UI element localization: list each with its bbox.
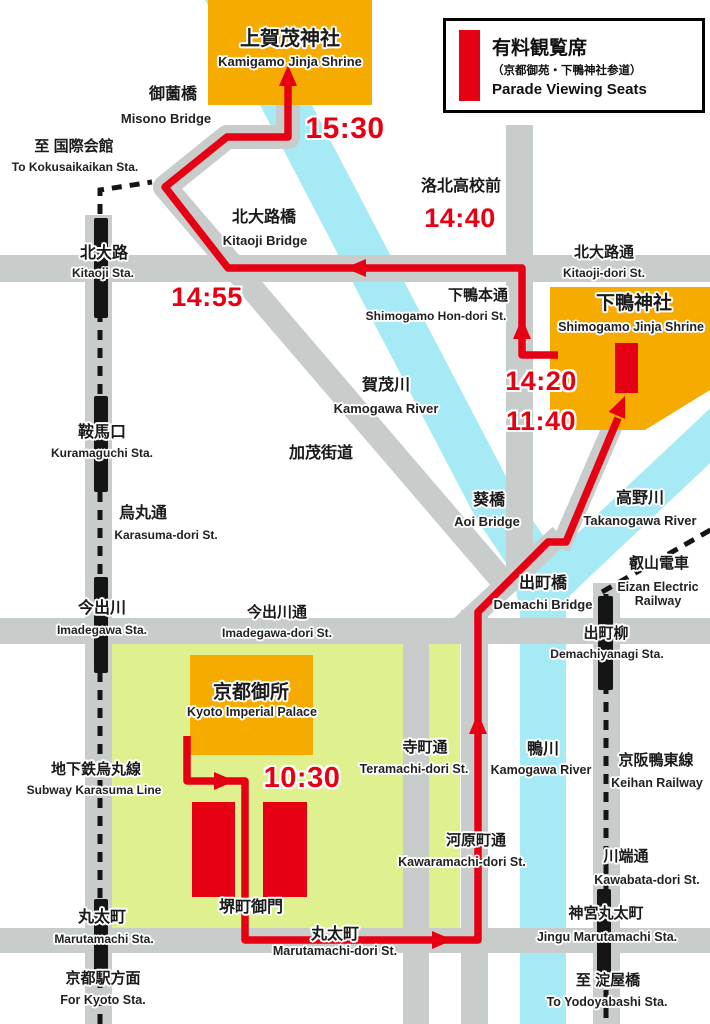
- marutamachi-station-jp: 丸太町: [78, 909, 126, 927]
- legend-title-en: Parade Viewing Seats: [492, 81, 647, 98]
- kamogawa-lower-en: Kamogawa River: [491, 764, 592, 778]
- time-arrive-kamigamo: 15:30: [305, 112, 384, 146]
- kuramaguchi-station-en: Kuramaguchi Sta.: [51, 447, 153, 460]
- viewing-seats-gyoen-east: [263, 802, 307, 897]
- teramachi-dori-road: [403, 618, 429, 1024]
- legend-box: 有料観覧席 （京都御苑・下鴨神社参道） Parade Viewing Seats: [443, 18, 705, 113]
- misono-bridge-en: Misono Bridge: [121, 112, 211, 126]
- to-kokusaikaikan-jp: 至 国際会館: [34, 139, 113, 156]
- subway-karasuma-en: Subway Karasuma Line: [27, 784, 162, 797]
- teramachi-dori-jp: 寺町通: [402, 740, 447, 757]
- imadegawa-dori-jp: 今出川通: [247, 605, 307, 622]
- shimogamo-shrine-name-jp: 下鴨神社: [596, 294, 672, 315]
- demachi-bridge-en: Demachi Bridge: [494, 598, 593, 612]
- time-kitaoji: 14:55: [171, 282, 243, 313]
- shimogamo-shrine-name-en: Shimogamo Jinja Shrine: [558, 321, 704, 335]
- imperial-palace-name-jp: 京都御所: [213, 683, 289, 704]
- demachiyanagi-station-marker: [598, 596, 613, 690]
- imperial-palace-name-en: Kyoto Imperial Palace: [187, 706, 317, 720]
- time-rakuhoku: 14:40: [424, 203, 496, 234]
- to-yodoyabashi-jp: 至 淀屋橋: [576, 973, 640, 990]
- karasuma-dori-jp: 烏丸通: [119, 505, 167, 523]
- demachi-bridge-jp: 出町橋: [519, 575, 567, 593]
- for-kyoto-station-jp: 京都駅方面: [65, 971, 140, 988]
- takanogawa-jp: 高野川: [616, 490, 664, 508]
- kyoto-parade-route-map: 有料観覧席 （京都御苑・下鴨神社参道） Parade Viewing Seats…: [0, 0, 710, 1024]
- kamigamo-shrine-name-jp: 上賀茂神社: [240, 28, 340, 50]
- rakuhoku-label: 洛北高校前: [421, 178, 501, 196]
- sakaimachi-gomon-label: 堺町御門: [219, 899, 283, 917]
- eizan-railway-en: Eizan Electric Railway: [602, 580, 710, 609]
- legend-red-swatch-icon: [459, 30, 480, 101]
- kitaoji-station-jp: 北大路: [80, 245, 128, 263]
- imadegawa-dori-en: Imadegawa-dori St.: [222, 627, 332, 640]
- kamogawa-lower-jp: 鴨川: [527, 741, 559, 759]
- shimogamo-hondori-jp: 下鴨本通: [448, 288, 508, 305]
- keihan-railway-jp: 京阪鴨東線: [618, 753, 693, 770]
- imadegawa-station-jp: 今出川: [78, 600, 126, 618]
- imadegawa-station-en: Imadegawa Sta.: [57, 624, 147, 637]
- demachiyanagi-station-en: Demachiyanagi Sta.: [550, 648, 663, 661]
- eizan-railway-jp: 叡山電車: [629, 556, 689, 573]
- kawabata-dori-en: Kawabata-dori St.: [594, 874, 700, 888]
- kawaramachi-dori-en: Kawaramachi-dori St.: [398, 856, 526, 870]
- karasuma-dori-en: Karasuma-dori St.: [114, 529, 217, 542]
- takanogawa-en: Takanogawa River: [583, 514, 696, 528]
- jingu-marutamachi-station-jp: 神宮丸太町: [568, 906, 643, 923]
- marutamachi-station-en: Marutamachi Sta.: [54, 933, 153, 946]
- kitaoji-dori-en: Kitaoji-dori St.: [563, 267, 645, 280]
- viewing-seats-shimogamo: [615, 343, 638, 393]
- kawaramachi-dori-jp: 河原町通: [446, 833, 506, 850]
- to-yodoyabashi-en: To Yodoyabashi Sta.: [547, 996, 668, 1010]
- keihan-railway-en: Keihan Railway: [611, 777, 703, 791]
- teramachi-dori-en: Teramachi-dori St.: [360, 763, 469, 777]
- subway-karasuma-jp: 地下鉄烏丸線: [51, 762, 141, 779]
- jingu-marutamachi-station-en: Jingu Marutamachi Sta.: [537, 931, 677, 945]
- to-kokusaikaikan-en: To Kokusaikaikan Sta.: [12, 161, 139, 174]
- marutamachi-dori-jp: 丸太町: [311, 926, 359, 944]
- kitaoji-bridge-jp: 北大路橋: [232, 209, 296, 227]
- kitaoji-dori-jp: 北大路通: [574, 245, 634, 262]
- kawabata-dori-jp: 川端通: [603, 849, 648, 866]
- time-depart-palace: 10:30: [264, 762, 341, 795]
- legend-note-jp: （京都御苑・下鴨神社参道）: [492, 62, 647, 78]
- kamogawa-upper-en: Kamogawa River: [334, 402, 439, 416]
- kitaoji-station-en: Kitaoji Sta.: [72, 267, 134, 280]
- kuramaguchi-station-jp: 鞍馬口: [78, 424, 126, 442]
- viewing-seats-gyoen-west: [192, 802, 235, 897]
- kamogawa-upper-jp: 賀茂川: [362, 377, 410, 395]
- kuramaguchi-station-marker: [94, 396, 108, 492]
- for-kyoto-station-en: For Kyoto Sta.: [60, 994, 145, 1008]
- demachiyanagi-station-jp: 出町柳: [583, 626, 628, 643]
- aoi-bridge-jp: 葵橋: [473, 492, 505, 510]
- kitaoji-bridge-en: Kitaoji Bridge: [223, 234, 308, 248]
- aoi-bridge-en: Aoi Bridge: [454, 515, 520, 529]
- legend-title-jp: 有料観覧席: [492, 33, 647, 60]
- kamigamo-shrine-name-en: Kamigamo Jinja Shrine: [218, 55, 362, 69]
- misono-bridge-jp: 御薗橋: [149, 86, 197, 104]
- marutamachi-dori-en: Marutamachi-dori St.: [273, 945, 397, 959]
- time-arrive-shimogamo: 11:40: [506, 406, 576, 437]
- kamo-kaido-label: 加茂街道: [289, 445, 353, 463]
- shimogamo-hondori-en: Shimogamo Hon-dori St.: [366, 310, 507, 323]
- time-depart-shimogamo: 14:20: [505, 366, 577, 397]
